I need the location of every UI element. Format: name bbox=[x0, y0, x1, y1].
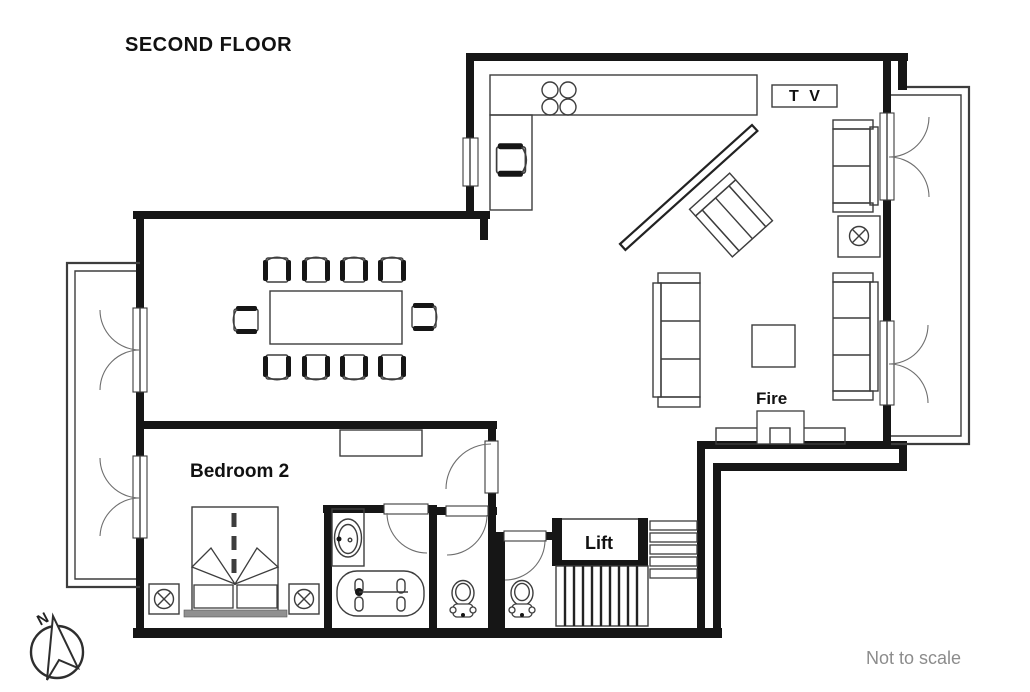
blanket-fold bbox=[235, 548, 278, 584]
headboard bbox=[184, 610, 287, 617]
bathroom bbox=[332, 509, 424, 616]
kitchen bbox=[463, 75, 757, 210]
pillow bbox=[194, 585, 233, 608]
sofa-two-seat bbox=[833, 120, 878, 212]
lift-wall bbox=[638, 518, 648, 566]
fireplace bbox=[716, 411, 845, 444]
interior-doors bbox=[384, 441, 546, 580]
wc2-door-frame bbox=[504, 531, 546, 541]
sink bbox=[332, 509, 364, 566]
dining-chair bbox=[378, 257, 406, 282]
fireplace-label: Fire bbox=[756, 389, 787, 408]
bathtub bbox=[337, 571, 424, 616]
balcony-right bbox=[880, 87, 969, 444]
door-swing-arc bbox=[446, 444, 491, 489]
dining-chair bbox=[302, 257, 330, 282]
dining-area bbox=[233, 257, 437, 380]
table-lamp-icon bbox=[155, 590, 174, 609]
bedroom2-label: Bedroom 2 bbox=[190, 461, 289, 482]
coffee-table bbox=[752, 325, 795, 367]
toilet bbox=[509, 581, 535, 618]
desk-chair bbox=[497, 143, 527, 177]
sofa-three-seat-left bbox=[653, 273, 700, 407]
wc-1 bbox=[450, 581, 476, 618]
dining-chair bbox=[340, 355, 368, 380]
bathroom-door-frame bbox=[384, 504, 428, 514]
stove-icon bbox=[542, 82, 576, 115]
living-room bbox=[620, 85, 880, 444]
dining-chair bbox=[378, 355, 406, 380]
toilet bbox=[450, 581, 476, 618]
dining-chair bbox=[302, 355, 330, 380]
dining-chair bbox=[340, 257, 368, 282]
armchair-angled bbox=[690, 173, 773, 257]
nightstand-right bbox=[289, 584, 319, 614]
compass: N bbox=[31, 609, 83, 680]
bedroom-2 bbox=[149, 430, 422, 617]
stair-treads-icon bbox=[650, 521, 697, 578]
console-divider bbox=[620, 125, 757, 250]
page-title: SECOND FLOOR bbox=[125, 34, 292, 56]
lift-and-stairs bbox=[552, 518, 697, 626]
lift-label: Lift bbox=[585, 533, 613, 553]
stairs-down-icon bbox=[556, 566, 648, 626]
floorplan-canvas: N SECOND FLOOR Bedroom 2 Lift Fire T V N… bbox=[0, 0, 1030, 692]
side-table bbox=[838, 216, 880, 257]
pillow bbox=[237, 585, 277, 608]
balcony-left bbox=[67, 263, 147, 587]
floorplan-page: N SECOND FLOOR Bedroom 2 Lift Fire T V N… bbox=[0, 0, 1030, 692]
lift-wall bbox=[552, 518, 562, 566]
dining-chair bbox=[263, 355, 291, 380]
tv-label: T V bbox=[789, 88, 823, 105]
wc1-door-frame bbox=[446, 506, 488, 516]
bedroom-door-frame bbox=[485, 441, 498, 493]
nightstand-left bbox=[149, 584, 179, 614]
kitchen-counter bbox=[490, 75, 757, 115]
walls bbox=[133, 53, 908, 638]
table-lamp-icon bbox=[295, 590, 314, 609]
sofa-three-seat-right bbox=[833, 273, 878, 400]
dining-chair bbox=[263, 257, 291, 282]
wardrobe bbox=[340, 430, 422, 456]
table-lamp-icon bbox=[850, 227, 869, 246]
scale-note: Not to scale bbox=[866, 648, 961, 668]
dining-chair bbox=[233, 306, 258, 334]
blanket-fold bbox=[192, 548, 235, 584]
dining-table bbox=[270, 291, 402, 344]
dining-chair bbox=[412, 303, 437, 331]
wc-2 bbox=[509, 581, 535, 618]
double-bed bbox=[184, 507, 287, 617]
